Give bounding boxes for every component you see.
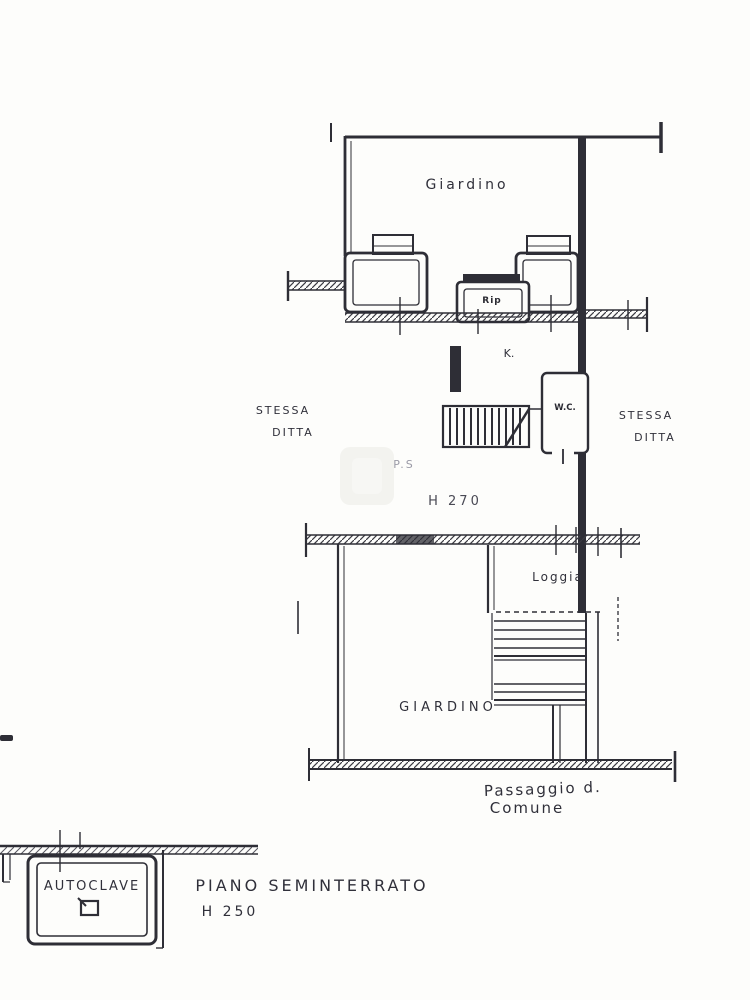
- label-floor-height: H 250: [202, 904, 259, 920]
- floor-plan-drawing: Giardino Rip K. W.C. STESSA DITTA STESSA…: [0, 0, 750, 1000]
- autoclave-room: [28, 850, 163, 948]
- scan-watermark: [340, 447, 394, 505]
- label-loggia: Loggia: [532, 570, 584, 584]
- autoclave-unit-icon: [78, 898, 98, 915]
- bottom-boundary-wall: [309, 748, 675, 782]
- loggia-walls: [488, 545, 494, 613]
- left-wall-stub: [288, 271, 345, 301]
- label-passage-line1: Passaggio d.: [484, 778, 602, 800]
- passage-walls: [553, 612, 598, 763]
- left-wall-upper: [345, 136, 351, 256]
- basement-left-stub: [3, 854, 10, 882]
- chimney-flue: [450, 346, 461, 392]
- label-passage-line2: Comune: [490, 799, 565, 817]
- label-stessa-ditta-right-2: DITTA: [634, 431, 676, 444]
- exterior-steps-lower: [494, 684, 585, 705]
- top-boundary-wall: [331, 122, 661, 153]
- label-garden-top: Giardino: [425, 177, 508, 193]
- label-kitchen: K.: [504, 347, 515, 360]
- label-autoclave: AUTOCLAVE: [44, 879, 140, 894]
- label-floor-title: PIANO SEMINTERRATO: [195, 876, 428, 895]
- wc-room: [542, 373, 588, 464]
- mid-facade-wall: [306, 523, 640, 558]
- staircase: [443, 406, 543, 447]
- label-room-code: P.S: [393, 458, 414, 471]
- label-garden-bottom: GIARDINO: [399, 700, 497, 715]
- upper-facade-wall-right-extension: [586, 297, 648, 332]
- exterior-steps-upper: [492, 613, 585, 700]
- scan-artifact-mark: [0, 735, 13, 741]
- label-stessa-ditta-left-1: STESSA: [256, 404, 310, 417]
- label-stessa-ditta-right-1: STESSA: [619, 409, 673, 422]
- loggia-edge-dashed: [496, 597, 618, 641]
- label-stessa-ditta-left-2: DITTA: [272, 426, 314, 439]
- label-storage: Rip: [482, 296, 501, 306]
- scanned-floor-plan-page: Giardino Rip K. W.C. STESSA DITTA STESSA…: [0, 0, 750, 1000]
- basement-top-wall: [0, 830, 258, 872]
- label-room-height: H 270: [428, 494, 482, 509]
- left-bay-window: [345, 235, 427, 312]
- label-wc: W.C.: [554, 403, 575, 413]
- left-garden-wall: [298, 544, 344, 763]
